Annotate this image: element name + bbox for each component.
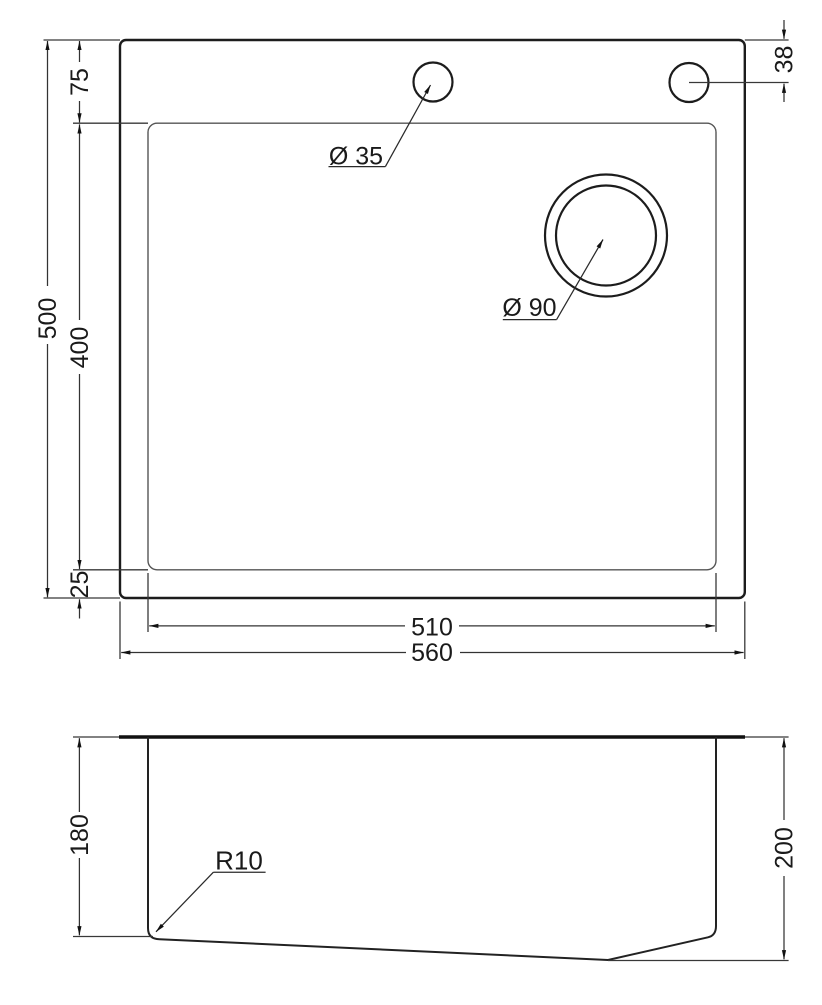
svg-text:R10: R10 xyxy=(215,846,263,876)
svg-text:500: 500 xyxy=(34,298,62,340)
svg-text:Ø 90: Ø 90 xyxy=(502,294,556,322)
svg-text:25: 25 xyxy=(66,571,94,599)
svg-text:38: 38 xyxy=(771,46,799,74)
svg-text:400: 400 xyxy=(66,327,94,369)
svg-text:200: 200 xyxy=(771,827,799,869)
svg-text:510: 510 xyxy=(411,613,453,641)
svg-text:75: 75 xyxy=(66,68,94,96)
svg-text:180: 180 xyxy=(66,814,94,856)
svg-text:Ø 35: Ø 35 xyxy=(329,143,383,171)
svg-text:560: 560 xyxy=(411,639,453,667)
